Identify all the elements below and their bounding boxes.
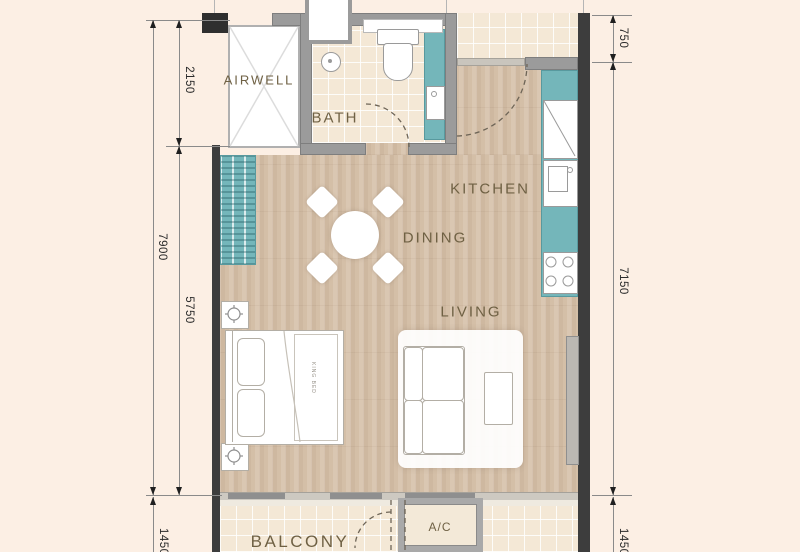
- bed-pillow: [237, 389, 265, 437]
- bath-vanity: [424, 29, 445, 140]
- dim-tick: [146, 20, 230, 21]
- dim-arrow: [150, 487, 156, 495]
- dim-arrow: [610, 487, 616, 495]
- extension-line: [446, 0, 447, 14]
- wall-exterior-right: [578, 13, 590, 552]
- wall-exterior-left: [212, 145, 220, 552]
- toilet-bowl: [383, 43, 413, 81]
- dim-label-2150: 2150: [183, 66, 195, 94]
- dim-arrow: [150, 497, 156, 505]
- dim-label-750: 750: [617, 28, 629, 49]
- wall-bath-bottom-right: [408, 143, 457, 155]
- wall-entry: [525, 57, 578, 70]
- entry-threshold: [457, 58, 525, 66]
- sliding-panel: [228, 493, 285, 499]
- tv-console: [566, 336, 579, 465]
- floor-corridor: [457, 13, 578, 60]
- room-label-ac: A/C: [428, 520, 451, 534]
- dim-label-7900: 7900: [156, 233, 168, 261]
- wall-bath-right: [445, 13, 457, 155]
- sofa-armrest: [404, 347, 423, 401]
- extension-line: [583, 0, 584, 13]
- dim-arrow: [176, 146, 182, 154]
- sofa-armrest: [404, 400, 423, 454]
- dim-tick: [146, 495, 222, 496]
- room-label-dining: DINING: [403, 230, 468, 247]
- dim-arrow: [610, 15, 616, 23]
- dim-arrow: [176, 487, 182, 495]
- sofa-seat-cushion: [422, 400, 464, 454]
- room-label-balcony: BALCONY: [251, 532, 350, 552]
- bath-sink: [426, 86, 445, 120]
- wardrobe: [220, 155, 256, 265]
- nightstand-top: [221, 301, 249, 329]
- dim-arrow: [176, 20, 182, 28]
- dim-line-2150: [179, 20, 180, 146]
- service-niche: [305, 0, 352, 44]
- dim-label-7150: 7150: [617, 267, 629, 295]
- bed-headboard: [232, 331, 233, 442]
- sofa-seat-cushion: [422, 347, 464, 401]
- dim-line-7150: [613, 62, 614, 495]
- floorplan-canvas: KING BED: [0, 0, 800, 552]
- dim-arrow: [610, 62, 616, 70]
- wall-bath-bottom-left: [300, 143, 366, 155]
- sliding-panel: [330, 493, 382, 499]
- structural-column: [202, 13, 228, 33]
- fridge: [543, 100, 578, 159]
- dim-line-7900: [153, 20, 154, 495]
- dim-arrow: [610, 54, 616, 62]
- room-label-kitchen: KITCHEN: [450, 181, 530, 198]
- dim-arrow: [150, 20, 156, 28]
- dim-label-1450-left: 1450: [157, 528, 169, 552]
- dim-line-5750: [179, 146, 180, 495]
- bed-pillow: [237, 338, 265, 386]
- floor-bath-door-threshold: [366, 143, 408, 155]
- dim-tick: [592, 495, 632, 496]
- extension-line: [214, 0, 215, 14]
- dining-table: [331, 211, 379, 259]
- room-label-airwell: AIRWELL: [224, 73, 295, 88]
- bed-label: KING BED: [310, 362, 316, 394]
- kitchen-sink-bowl: [548, 166, 568, 192]
- shower-drain-dot: [328, 59, 332, 63]
- dim-line-1450-left: [153, 497, 154, 552]
- dim-line-1450-right: [613, 497, 614, 552]
- room-label-living: LIVING: [440, 304, 501, 321]
- cooktop: [543, 252, 578, 294]
- coffee-table: [484, 372, 513, 425]
- bed-blanket: [294, 334, 338, 441]
- dim-arrow: [176, 138, 182, 146]
- dim-label-5750: 5750: [183, 296, 195, 324]
- dim-arrow: [610, 497, 616, 505]
- nightstand-bottom: [221, 443, 249, 471]
- room-label-bath: BATH: [312, 110, 359, 127]
- dim-label-1450-right: 1450: [617, 528, 629, 552]
